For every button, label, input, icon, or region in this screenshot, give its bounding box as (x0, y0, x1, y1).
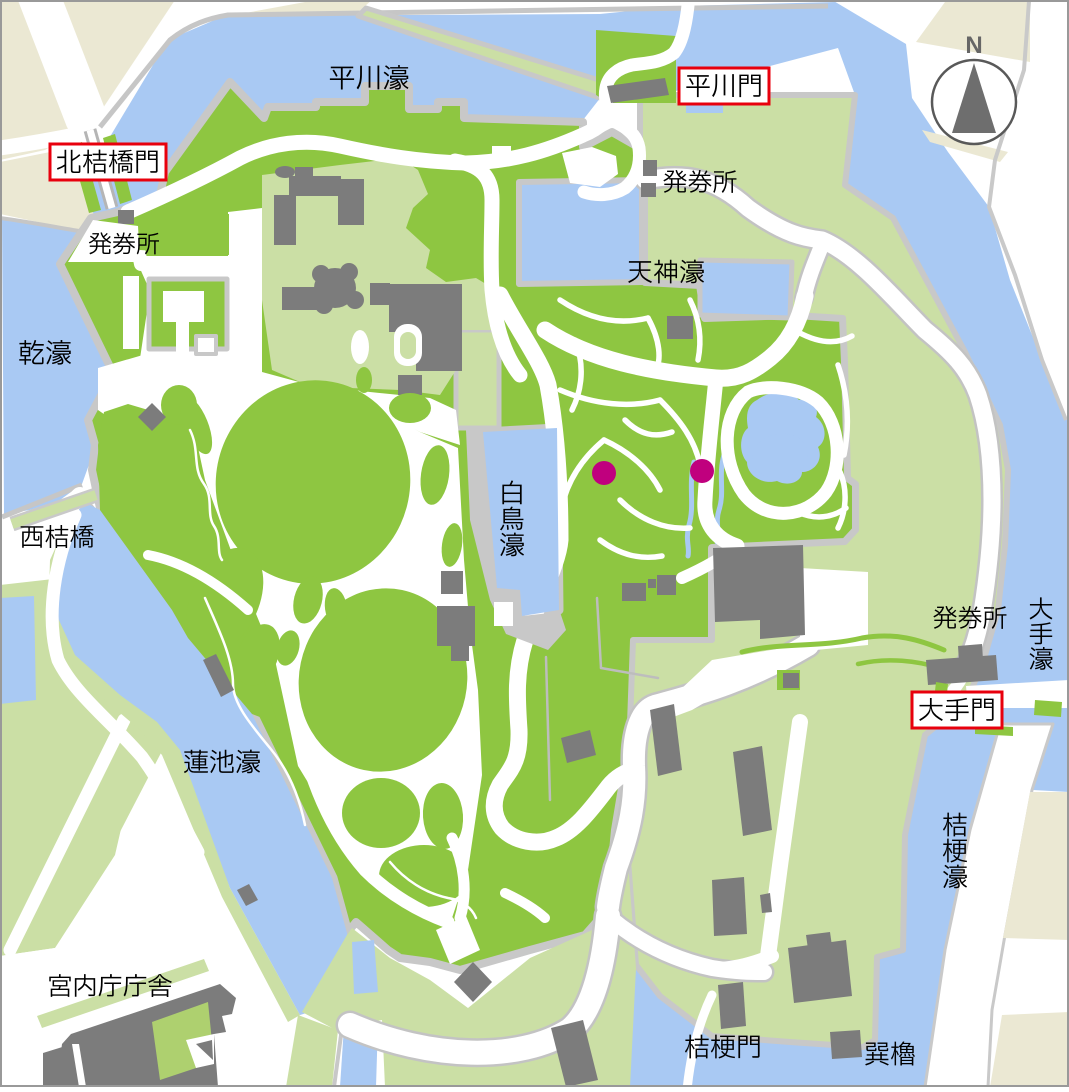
svg-text:N: N (965, 32, 982, 59)
